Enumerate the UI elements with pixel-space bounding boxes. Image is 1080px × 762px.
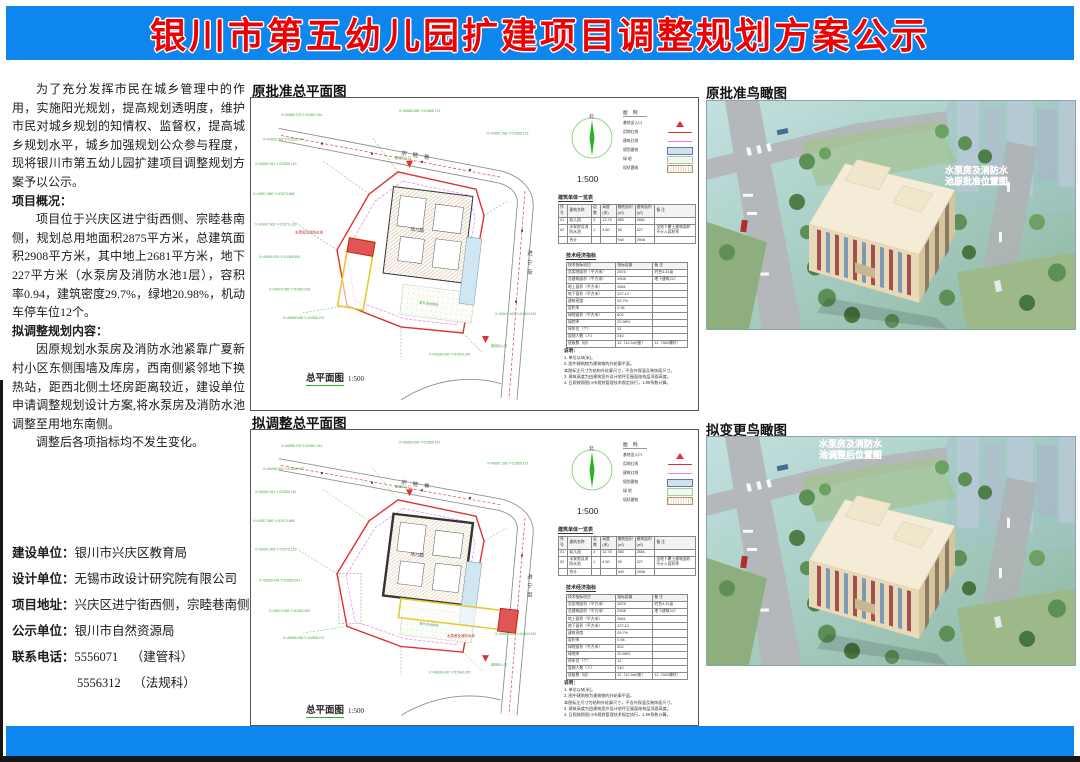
table-cell <box>653 644 688 651</box>
legend-row: 用地红线 <box>623 460 693 469</box>
table-cell: 01 <box>559 217 568 224</box>
table-cell <box>653 616 688 623</box>
table-row: 建筑密度29.7% <box>567 298 688 305</box>
table-cell: 班级数（班） <box>567 341 616 348</box>
table-cell: 20.98% <box>616 651 653 658</box>
svg-text:基地出入口: 基地出入口 <box>491 662 507 667</box>
green-space-swatch <box>667 488 693 496</box>
table-cell: 高度(米) <box>601 205 616 218</box>
table-cell: 01 <box>559 549 568 556</box>
table-cell: 1 <box>592 556 601 569</box>
planned-building-swatch <box>667 147 693 155</box>
svg-text:水泵房及消防水: 水泵房及消防水 <box>819 438 883 449</box>
table-row: 地下面积（平方米）227.12 <box>567 623 688 630</box>
svg-text:进宁街: 进宁街 <box>526 249 533 279</box>
table-cell: 班级数（班） <box>567 673 616 680</box>
legend-title: 图 例 <box>623 110 647 117</box>
table-cell: 2908 <box>616 609 653 616</box>
table-row: 01幼儿园312.758502681 <box>559 549 696 556</box>
table-cell <box>653 312 688 319</box>
site-plan-drawing: 幼儿园 室外活动场地 水泵房及消防水池 水泵房及消防水池 基地出 <box>251 98 551 410</box>
table-cell: 容纳人数（人） <box>567 333 616 340</box>
info-row: 建设单位：银川市兴庆区教育局 <box>12 540 248 566</box>
table-cell: 序号 <box>559 537 568 550</box>
legend-row: 建筑红线 <box>623 469 693 478</box>
table-cell: 227.12 <box>616 291 653 298</box>
table-cell <box>655 237 696 244</box>
technical-indicators-table: 技术经济指标 技术指标项目指标容量备 注总用地面积（平方米）2875约合4.31… <box>566 244 688 348</box>
entrance-triangle-icon <box>667 121 693 127</box>
svg-text:X=40807.063 Y=51570.122: X=40807.063 Y=51570.122 <box>255 223 296 227</box>
intro-text: 为了充分发挥市民在城乡管理中的作用，实施阳光规划，提高规划透明度，维护市民对城乡… <box>12 80 245 452</box>
original-aerial-view-panel: 水泵房及消防水 池原批准位置图 水泵房及消防水 池调整后位置图 <box>706 100 1076 330</box>
intro-paragraph: 为了充分发挥市民在城乡管理中的作用，实施阳光规划，提高规划透明度，维护市民对城乡… <box>12 80 245 192</box>
phone-row: 联系电话：5556071 （建管科） <box>12 644 248 670</box>
magenta-line-swatch <box>667 473 693 474</box>
pump-label-original: 水泵房及消防水池 <box>295 230 323 235</box>
table-cell <box>655 549 696 556</box>
svg-text:X=40858.375 Y=51561.044: X=40858.375 Y=51561.044 <box>281 444 322 448</box>
table-cell: 2875 <box>616 602 653 609</box>
table-row: 地下面积（平方米）227.12 <box>567 291 688 298</box>
existing-building-swatch <box>667 497 693 505</box>
table-cell: 12.75 <box>601 217 616 224</box>
table-cell: 940 <box>616 237 635 244</box>
svg-text:X=40817.880 Y=51573.888: X=40817.880 Y=51573.888 <box>253 519 294 523</box>
table-cell <box>653 284 688 291</box>
table-row: 停车位（个）12 <box>567 658 688 665</box>
svg-text:X=40836.430 Y=51543.245: X=40836.430 Y=51543.245 <box>429 670 470 674</box>
plan-scale: 1:500 <box>577 506 598 516</box>
plan-notes: 说明： 1. 单位以M(米)。2. 图中建筑物为建筑物的外轮廓平面。本图标注尺寸… <box>564 348 694 387</box>
table-cell: 层数 <box>592 537 601 550</box>
phone-row: 5556312 （法规科） <box>12 670 248 696</box>
magenta-line-swatch <box>667 141 693 142</box>
intro-paragraph: 项目位于兴庆区进宁街西侧、宗睦巷南侧，规划总用地面积2875平方米，总建筑面积2… <box>12 210 245 322</box>
svg-text:X=40869.425 Y=51568.641: X=40869.425 Y=51568.641 <box>259 578 300 582</box>
svg-text:X=40850.638 Y=51565.741: X=40850.638 Y=51565.741 <box>399 109 440 113</box>
table-cell: 02 <box>559 556 568 569</box>
bird1-label: 原批准鸟瞰图 <box>706 82 787 102</box>
svg-text:宗睦巷: 宗睦巷 <box>401 478 436 491</box>
table-row: 绿地面积（平方米）602 <box>567 312 688 319</box>
table-row: 总用地面积（平方米）2875约合4.31亩 <box>567 270 688 277</box>
svg-text:X=40806.594 Y=51562.347: X=40806.594 Y=51562.347 <box>263 138 304 142</box>
table-cell: 20.98% <box>616 319 653 326</box>
note-line: 4. 日照按照银川市规划管理技术规定执行，1.99系数计算。 <box>564 712 694 718</box>
table-cell: 建筑面积(㎡) <box>635 205 655 218</box>
legend-row: 绿 地 <box>623 487 693 496</box>
page: 银川市第五幼儿园扩建项目调整规划方案公示 为了充分发挥市民在城乡管理中的作用，实… <box>0 0 1080 762</box>
plan-caption: 总平面图1:500 <box>306 370 364 384</box>
svg-text:X=40850.638 Y=51565.741: X=40850.638 Y=51565.741 <box>399 440 440 444</box>
svg-text:北: 北 <box>589 113 594 120</box>
table-row: 绿地率20.98% <box>567 651 688 658</box>
table-cell <box>653 333 688 340</box>
intro-paragraph: 因原规划水泵房及消防水池紧靠广夏新村小区东侧围墙及库房，西南侧紧邻地下换热站，距… <box>12 340 245 433</box>
table-cell: 地下建筑227 <box>653 277 688 284</box>
legend-row: 现状建筑 <box>623 164 693 173</box>
site-plan: 幼儿园 室外活动场地 水泵房及消防水池 水泵房及消防水池 基地出 <box>251 98 698 410</box>
svg-text:X=40801.061 Y=51559.140: X=40801.061 Y=51559.140 <box>255 490 296 494</box>
table-cell: 总用地面积（平方米） <box>567 602 616 609</box>
table-row: 停车位（个）12 <box>567 326 688 333</box>
table-cell: 2681 <box>616 616 653 623</box>
table-cell: 建筑名称 <box>568 537 592 550</box>
bottom-banner <box>6 726 1074 756</box>
svg-text:X=40867.298 Y=51565.173: X=40867.298 Y=51565.173 <box>487 131 528 135</box>
legend-row: 建筑红线 <box>623 137 693 146</box>
table-cell: 备 注 <box>655 205 696 218</box>
table-cell: 备 注 <box>653 263 688 270</box>
table-cell: 3 <box>592 549 601 556</box>
section-heading: 拟调整规划内容： <box>12 322 245 341</box>
table-cell: 地上面积（平方米） <box>567 616 616 623</box>
legend-row: 现状建筑 <box>623 496 693 505</box>
table-cell: 602 <box>616 644 653 651</box>
table-cell: 备 注 <box>653 595 688 602</box>
table-cell: 12（360课时） <box>653 341 688 348</box>
aerial-rendering: 水泵房及消防水 池原批准位置图 水泵房及消防水 池调整后位置图 <box>707 437 1075 665</box>
green-space-swatch <box>667 156 693 164</box>
banner: 银川市第五幼儿园扩建项目调整规划方案公示 <box>6 6 1074 60</box>
pump-house-original <box>338 238 375 310</box>
table-cell: 指标容量 <box>616 263 653 270</box>
table-cell: 602 <box>616 312 653 319</box>
table-cell: 建筑密度 <box>567 630 616 637</box>
site-plan-drawing: 幼儿园 室外活动场地 水泵房及消防水池 水泵房及消防水池 基地出 <box>251 430 551 725</box>
table-cell: 12（360课时） <box>653 673 688 680</box>
legend-row: 规划建筑 <box>623 146 693 155</box>
table-cell: 全地下覆土建筑面积不计入容积率 <box>655 224 696 237</box>
table-cell: 2681 <box>635 217 655 224</box>
table-cell: 90 <box>616 556 635 569</box>
svg-text:X=40858.638 Y=51566.274: X=40858.638 Y=51566.274 <box>283 316 324 320</box>
table-row: 合计9402908 <box>559 569 696 576</box>
table-cell: 850 <box>616 217 635 224</box>
technical-indicators-table: 技术经济指标 技术指标项目指标容量备 注总用地面积（平方米）2875约合4.31… <box>566 576 688 680</box>
table-cell <box>653 319 688 326</box>
table-cell: 2908 <box>616 277 653 284</box>
table-cell: 240 <box>616 665 653 672</box>
table-row: 建筑密度29.7% <box>567 630 688 637</box>
table-cell: 停车位（个） <box>567 326 616 333</box>
info-row: 项目地址：兴庆区进宁街西侧，宗睦巷南侧 <box>12 592 248 618</box>
svg-text:X=40858.375 Y=51561.044: X=40858.375 Y=51561.044 <box>281 113 322 117</box>
north-compass: 北 <box>569 444 615 506</box>
table-cell: 总建筑面积（平方米） <box>567 277 616 284</box>
aerial-rendering: 水泵房及消防水 池原批准位置图 水泵房及消防水 池调整后位置图 <box>707 101 1075 329</box>
svg-text:X=40807.063 Y=51570.122: X=40807.063 Y=51570.122 <box>255 548 296 552</box>
svg-text:水泵房及消防水: 水泵房及消防水 <box>945 165 1009 176</box>
table-cell: 3 <box>592 217 601 224</box>
legend-row: 绿 地 <box>623 155 693 164</box>
table-cell <box>653 651 688 658</box>
table-cell: 指标容量 <box>616 595 653 602</box>
table-cell: 容积率 <box>567 305 616 312</box>
north-compass: 北 <box>569 112 615 174</box>
table-cell: 0.94 <box>616 637 653 644</box>
entrance-triangle-icon <box>667 453 693 459</box>
table-cell: 2681 <box>616 284 653 291</box>
svg-text:X=40841.622 Y=51543.542: X=40841.622 Y=51543.542 <box>495 632 536 636</box>
table-cell: 240 <box>616 333 653 340</box>
table-cell: 高度(米) <box>601 537 616 550</box>
table-cell: 绿地面积（平方米） <box>567 644 616 651</box>
plan-caption: 总平面图1:500 <box>306 702 364 716</box>
existing-building-swatch <box>667 165 693 173</box>
table-cell: 绿地率 <box>567 651 616 658</box>
table-cell: 850 <box>616 549 635 556</box>
note-line: 4. 日照按照银川市规划管理技术规定执行，1.99系数计算。 <box>564 380 694 386</box>
table-row: 技术指标项目指标容量备 注 <box>567 263 688 270</box>
building-list-table: 建筑单体一览表 序号建筑名称层数高度(米)基底面积(㎡)建筑面积(㎡)备 注01… <box>558 518 696 576</box>
svg-text:进宁街: 进宁街 <box>526 572 533 601</box>
table-cell: 基底面积(㎡) <box>616 205 635 218</box>
table-cell <box>601 237 616 244</box>
table-row: 容纳人数（人）240 <box>567 665 688 672</box>
table-cell <box>653 630 688 637</box>
table-cell: 绿地率 <box>567 319 616 326</box>
table-cell: 2875 <box>616 270 653 277</box>
building-list-table: 建筑单体一览表 序号建筑名称层数高度(米)基底面积(㎡)建筑面积(㎡)备 注01… <box>558 186 696 244</box>
table-row: 地上面积（平方米）2681 <box>567 616 688 623</box>
table-cell: 227.12 <box>616 623 653 630</box>
table-cell: 建筑面积(㎡) <box>635 537 655 550</box>
svg-text:X=40841.622 Y=51543.542: X=40841.622 Y=51543.542 <box>495 312 536 316</box>
svg-text:北: 北 <box>589 445 594 452</box>
table-cell: 地下面积（平方米） <box>567 291 616 298</box>
table-cell: 90 <box>616 224 635 237</box>
svg-text:池调整后位置图: 池调整后位置图 <box>819 449 882 460</box>
table-row: 容积率0.94 <box>567 637 688 644</box>
svg-text:X=40874.058 Y=51562.692: X=40874.058 Y=51562.692 <box>269 609 310 613</box>
table-cell: 停车位（个） <box>567 658 616 665</box>
table-row: 容积率0.94 <box>567 305 688 312</box>
table-row: 绿地率20.98% <box>567 319 688 326</box>
site-plan: 幼儿园 室外活动场地 水泵房及消防水池 水泵房及消防水池 基地出 <box>251 430 698 725</box>
kindergarten-building: 幼儿园 <box>383 187 473 283</box>
table-cell: 12（12.5㎡/座） <box>616 341 653 348</box>
table-cell: 合计 <box>568 237 592 244</box>
table-cell: 全地下覆土建筑面积不计入容积率 <box>655 556 696 569</box>
plan-notes: 说明： 1. 单位以M(米)。2. 图中建筑物为建筑物的外轮廓平面。本图标注尺寸… <box>564 680 694 719</box>
table-row: 序号建筑名称层数高度(米)基底面积(㎡)建筑面积(㎡)备 注 <box>559 205 696 218</box>
table-cell: 4.50 <box>601 224 616 237</box>
legend-title: 图 例 <box>623 442 647 449</box>
legend-row: 基地出入口 <box>623 119 693 128</box>
table-cell <box>655 569 696 576</box>
table-row: 班级数（班）12（12.5㎡/座）12（360课时） <box>567 341 688 348</box>
table-cell: 序号 <box>559 205 568 218</box>
table-cell <box>559 237 568 244</box>
table-cell: 02 <box>559 224 568 237</box>
table-row: 容纳人数（人）240 <box>567 333 688 340</box>
table-cell <box>601 569 616 576</box>
table-cell: 层数 <box>592 205 601 218</box>
svg-text:X=40858.638 Y=51566.274: X=40858.638 Y=51566.274 <box>283 636 324 640</box>
table-cell: 2681 <box>635 549 655 556</box>
adjusted-aerial-view-panel: 水泵房及消防水 池原批准位置图 水泵房及消防水 池调整后位置图 <box>706 436 1076 666</box>
svg-text:X=40869.425 Y=51568.641: X=40869.425 Y=51568.641 <box>259 255 300 259</box>
table-row: 序号建筑名称层数高度(米)基底面积(㎡)建筑面积(㎡)备 注 <box>559 537 696 550</box>
table-cell: 2908 <box>635 569 655 576</box>
table-cell: 总用地面积（平方米） <box>567 270 616 277</box>
svg-text:X=40867.298 Y=51565.173: X=40867.298 Y=51565.173 <box>487 462 528 466</box>
table-cell <box>592 569 601 576</box>
table-row: 绿地面积（平方米）602 <box>567 644 688 651</box>
table-cell: 12.75 <box>601 549 616 556</box>
table-cell <box>655 217 696 224</box>
svg-text:X=40801.061 Y=51559.140: X=40801.061 Y=51559.140 <box>255 162 296 166</box>
table-cell: 建筑密度 <box>567 298 616 305</box>
svg-text:X=40817.880 Y=51573.888: X=40817.880 Y=51573.888 <box>253 192 294 196</box>
kindergarten-building: 幼儿园 <box>383 514 473 605</box>
original-site-plan-panel: 幼儿园 室外活动场地 水泵房及消防水池 水泵房及消防水池 基地出 <box>250 97 699 411</box>
table-cell: 水泵房及消防水池 <box>568 224 592 237</box>
table-row: 总建筑面积（平方米）2908地下建筑227 <box>567 277 688 284</box>
scan-edge <box>0 380 3 762</box>
table-cell <box>559 569 568 576</box>
table-cell: 940 <box>616 569 635 576</box>
table-cell: 技术指标项目 <box>567 263 616 270</box>
svg-text:基地出入口: 基地出入口 <box>491 343 507 348</box>
info-row: 公示单位：银川市自然资源局 <box>12 618 248 644</box>
table-cell: 总建筑面积（平方米） <box>567 609 616 616</box>
table-row: 地上面积（平方米）2681 <box>567 284 688 291</box>
table-cell: 基底面积(㎡) <box>616 537 635 550</box>
section-heading: 项目概况： <box>12 192 245 211</box>
table-cell <box>592 237 601 244</box>
project-info: 建设单位：银川市兴庆区教育局 设计单位：无锡市政设计研究院有限公司 项目地址：兴… <box>12 540 248 746</box>
legend-row: 规划建筑 <box>623 478 693 487</box>
table-row: 01幼儿园312.758502681 <box>559 217 696 224</box>
table-cell: 227 <box>635 224 655 237</box>
table-row: 总建筑面积（平方米）2908地下建筑227 <box>567 609 688 616</box>
table-cell: 备 注 <box>655 537 696 550</box>
table-row: 班级数（班）12（12.5㎡/座）12（360课时） <box>567 673 688 680</box>
svg-text:宗睦巷: 宗睦巷 <box>401 149 436 162</box>
red-line-swatch <box>667 132 693 133</box>
table-cell: 29.7% <box>616 298 653 305</box>
table-cell: 容积率 <box>567 637 616 644</box>
table-row: 总用地面积（平方米）2875约合4.31亩 <box>567 602 688 609</box>
pump-label-adjusted: 水泵房及消防水池 <box>447 633 475 638</box>
legend-row: 用地红线 <box>623 128 693 137</box>
svg-text:X=40874.058 Y=51562.692: X=40874.058 Y=51562.692 <box>269 287 310 291</box>
table-cell <box>653 291 688 298</box>
table-cell: 约合4.31亩 <box>653 270 688 277</box>
table-cell <box>653 658 688 665</box>
table-cell: 容纳人数（人） <box>567 665 616 672</box>
table-cell: 水泵房及消防水池 <box>568 556 592 569</box>
svg-text:池原批准位置图: 池原批准位置图 <box>945 176 1008 187</box>
red-line-swatch <box>667 464 693 465</box>
table-cell <box>653 623 688 630</box>
plan-legend: 图 例 基地出入口 用地红线 建筑红线 规划建筑 绿 地 <box>623 442 693 505</box>
table-cell <box>653 326 688 333</box>
table-cell: 幼儿园 <box>568 217 592 224</box>
intro-paragraph: 调整后各项指标均不发生变化。 <box>12 433 245 452</box>
info-row: 设计单位：无锡市政设计研究院有限公司 <box>12 566 248 592</box>
table-cell <box>653 305 688 312</box>
table-cell: 12 <box>616 326 653 333</box>
table-cell: 地上面积（平方米） <box>567 284 616 291</box>
table-cell: 12 <box>616 658 653 665</box>
table-cell: 地下建筑227 <box>653 609 688 616</box>
table-cell: 12（12.5㎡/座） <box>616 673 653 680</box>
table-cell: 幼儿园 <box>568 549 592 556</box>
legend-row: 基地出入口 <box>623 451 693 460</box>
table-cell: 2908 <box>635 237 655 244</box>
table-cell: 地下面积（平方米） <box>567 623 616 630</box>
table-cell: 227 <box>635 556 655 569</box>
table-cell: 合计 <box>568 569 592 576</box>
table-row: 02水泵房及消防水池14.5090227全地下覆土建筑面积不计入容积率 <box>559 224 696 237</box>
table-cell: 1 <box>592 224 601 237</box>
table-cell: 建筑名称 <box>568 205 592 218</box>
table-row: 02水泵房及消防水池14.5090227全地下覆土建筑面积不计入容积率 <box>559 556 696 569</box>
adjusted-site-plan-panel: 幼儿园 室外活动场地 水泵房及消防水池 水泵房及消防水池 基地出 <box>250 429 699 726</box>
table-cell: 技术指标项目 <box>567 595 616 602</box>
svg-text:X=40836.430 Y=51543.245: X=40836.430 Y=51543.245 <box>429 352 470 356</box>
svg-text:X=40806.594 Y=51562.347: X=40806.594 Y=51562.347 <box>263 467 304 471</box>
table-cell: 0.94 <box>616 305 653 312</box>
page-title: 银川市第五幼儿园扩建项目调整规划方案公示 <box>150 7 930 59</box>
table-cell <box>653 665 688 672</box>
table-cell: 29.7% <box>616 630 653 637</box>
table-cell <box>653 637 688 644</box>
table-cell: 绿地面积（平方米） <box>567 312 616 319</box>
scan-edge <box>0 756 1080 762</box>
table-cell <box>653 298 688 305</box>
table-row: 合计9402908 <box>559 237 696 244</box>
plan-legend: 图 例 基地出入口 用地红线 建筑红线 规划建筑 绿 地 <box>623 110 693 173</box>
table-row: 技术指标项目指标容量备 注 <box>567 595 688 602</box>
planned-building-swatch <box>667 479 693 487</box>
table-cell: 约合4.31亩 <box>653 602 688 609</box>
plan-scale: 1:500 <box>577 174 598 184</box>
table-cell: 4.50 <box>601 556 616 569</box>
